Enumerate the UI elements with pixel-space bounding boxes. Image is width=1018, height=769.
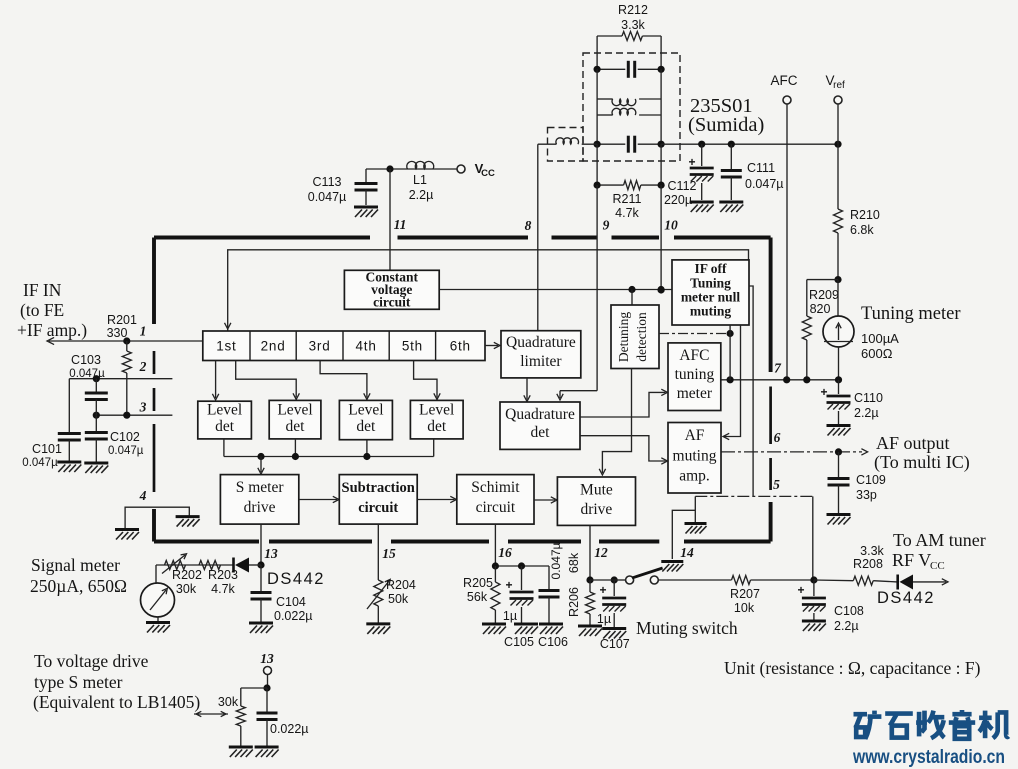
svg-text:1µ: 1µ <box>597 612 611 626</box>
svg-text:0.047µ: 0.047µ <box>22 457 58 469</box>
svg-text:13: 13 <box>260 651 274 666</box>
svg-text:2: 2 <box>139 359 147 374</box>
svg-text:R212: R212 <box>618 3 648 17</box>
svg-text:R207: R207 <box>730 587 760 601</box>
svg-text:16: 16 <box>498 545 512 560</box>
svg-text:30k: 30k <box>218 695 239 709</box>
svg-text:4th: 4th <box>356 339 377 354</box>
svg-text:+: + <box>820 385 827 399</box>
svg-text:33p: 33p <box>856 488 877 502</box>
svg-text:Level: Level <box>419 402 454 419</box>
svg-text:10: 10 <box>664 218 678 233</box>
svg-text:AF output: AF output <box>876 433 950 453</box>
svg-text:AFC: AFC <box>679 347 709 364</box>
svg-text:tuning: tuning <box>675 366 715 383</box>
svg-text:0.047µ: 0.047µ <box>108 445 144 457</box>
svg-text:Quadrature: Quadrature <box>506 334 576 351</box>
svg-text:50k: 50k <box>388 592 409 606</box>
svg-text:Signal meter: Signal meter <box>31 555 120 575</box>
svg-text:8: 8 <box>525 218 532 233</box>
svg-text:drive: drive <box>244 499 276 516</box>
svg-text:2.2µ: 2.2µ <box>834 619 859 633</box>
svg-text:circuit: circuit <box>373 295 411 310</box>
svg-text:1st: 1st <box>216 339 236 354</box>
svg-text:R201: R201 <box>107 313 137 327</box>
svg-text:0.022µ: 0.022µ <box>270 722 308 736</box>
svg-text:2.2µ: 2.2µ <box>409 188 434 202</box>
svg-text:meter null: meter null <box>681 290 741 305</box>
svg-text:C104: C104 <box>276 595 306 609</box>
svg-text:DS442: DS442 <box>267 570 325 588</box>
svg-text:To AM tuner: To AM tuner <box>893 530 986 550</box>
svg-text:drive: drive <box>580 501 612 518</box>
svg-text:220µ: 220µ <box>664 193 692 207</box>
svg-text:3.3k: 3.3k <box>860 544 884 558</box>
svg-text:6.8k: 6.8k <box>850 223 874 237</box>
svg-text:1µ: 1µ <box>503 609 517 623</box>
svg-text:5: 5 <box>773 477 780 492</box>
svg-text:30k: 30k <box>176 582 197 596</box>
svg-text:2.2µ: 2.2µ <box>854 406 879 420</box>
svg-text:RF V: RF V <box>892 550 931 570</box>
svg-text:5th: 5th <box>402 339 423 354</box>
svg-text:IF IN: IF IN <box>23 280 62 300</box>
svg-text:Unit (resistance : Ω, capacita: Unit (resistance : Ω, capacitance : F) <box>724 658 981 678</box>
svg-text:68k: 68k <box>567 552 581 573</box>
svg-text:det: det <box>356 418 376 435</box>
svg-text:1: 1 <box>140 324 147 339</box>
svg-text:C111: C111 <box>747 161 775 175</box>
svg-text:C112: C112 <box>668 179 697 193</box>
svg-text:3.3k: 3.3k <box>621 18 645 32</box>
svg-text:CC: CC <box>481 168 495 179</box>
svg-text:12: 12 <box>594 545 608 560</box>
svg-text:limiter: limiter <box>520 353 562 370</box>
svg-text:4.7k: 4.7k <box>615 206 639 220</box>
svg-text:10k: 10k <box>734 601 755 615</box>
svg-text:R206: R206 <box>567 587 581 617</box>
svg-text:type S meter: type S meter <box>34 672 123 692</box>
svg-text:Tuning meter: Tuning meter <box>861 304 961 324</box>
svg-text:Level: Level <box>277 402 312 419</box>
svg-text:R211: R211 <box>613 192 642 206</box>
svg-text:(to FE: (to FE <box>20 300 64 320</box>
svg-text:S meter: S meter <box>236 479 285 496</box>
svg-text:IF off: IF off <box>694 261 727 276</box>
svg-text:det: det <box>531 424 551 441</box>
svg-text:+: + <box>688 155 695 169</box>
svg-text:2nd: 2nd <box>261 339 286 354</box>
svg-text:circuit: circuit <box>358 500 398 516</box>
svg-text:C113: C113 <box>313 175 342 189</box>
svg-text:0.047µ: 0.047µ <box>745 177 783 191</box>
svg-text:+: + <box>599 583 606 597</box>
svg-text:0.047µ: 0.047µ <box>308 190 346 204</box>
svg-text:R202: R202 <box>172 568 202 582</box>
svg-text:R205: R205 <box>463 576 493 590</box>
svg-text:14: 14 <box>680 545 694 560</box>
svg-text:Tuning: Tuning <box>690 276 731 291</box>
svg-text:4.7k: 4.7k <box>211 582 235 596</box>
svg-text:600Ω: 600Ω <box>861 346 893 361</box>
svg-text:Detuning: Detuning <box>616 312 631 362</box>
svg-text:detection: detection <box>634 312 649 362</box>
svg-text:+IF amp.): +IF amp.) <box>17 320 87 340</box>
svg-text:AFC: AFC <box>771 73 798 88</box>
svg-text:9: 9 <box>603 218 610 233</box>
svg-text:C109: C109 <box>856 473 886 487</box>
svg-text:6: 6 <box>774 430 781 445</box>
svg-text:6th: 6th <box>450 339 471 354</box>
svg-text:DS442: DS442 <box>877 589 935 607</box>
svg-text:0.022µ: 0.022µ <box>274 609 312 623</box>
svg-text:C110: C110 <box>854 391 883 405</box>
svg-text:3rd: 3rd <box>309 339 331 354</box>
svg-text:Level: Level <box>348 402 383 419</box>
svg-text:det: det <box>215 418 235 435</box>
svg-text:+: + <box>505 578 512 592</box>
svg-text:Mute: Mute <box>580 482 613 499</box>
svg-text:C107: C107 <box>600 637 630 651</box>
svg-text:Schimit: Schimit <box>471 479 520 496</box>
svg-text:Muting switch: Muting switch <box>636 618 738 638</box>
svg-text:11: 11 <box>394 217 407 232</box>
svg-text:R209: R209 <box>809 288 839 302</box>
svg-text:820: 820 <box>810 302 831 316</box>
svg-text:amp.: amp. <box>679 468 710 485</box>
svg-text:3: 3 <box>139 400 147 415</box>
svg-text:56k: 56k <box>467 590 488 604</box>
svg-text:(To multi IC): (To multi IC) <box>874 452 970 473</box>
svg-text:Subtraction: Subtraction <box>342 480 415 496</box>
svg-text:330: 330 <box>107 326 128 340</box>
svg-text:0.047µ: 0.047µ <box>549 542 563 579</box>
svg-text:4: 4 <box>139 488 147 503</box>
svg-text:R204: R204 <box>386 578 416 592</box>
svg-text:L1: L1 <box>413 173 427 187</box>
svg-text:250µA, 650Ω: 250µA, 650Ω <box>30 576 127 596</box>
svg-text:det: det <box>427 418 447 435</box>
svg-text:(Sumida): (Sumida) <box>688 114 764 136</box>
svg-text:0.047µ: 0.047µ <box>69 368 105 380</box>
svg-text:C102: C102 <box>110 430 140 444</box>
svg-text:C105: C105 <box>504 635 534 649</box>
svg-text:det: det <box>286 418 306 435</box>
svg-text:C101: C101 <box>32 442 62 456</box>
svg-text:muting: muting <box>690 304 732 319</box>
svg-text:Quadrature: Quadrature <box>505 406 575 423</box>
svg-text:ref: ref <box>833 80 845 91</box>
svg-text:meter: meter <box>677 385 713 402</box>
svg-text:(Equivalent to LB1405): (Equivalent to LB1405) <box>33 692 200 712</box>
svg-text:Level: Level <box>207 402 242 419</box>
svg-text:15: 15 <box>382 546 396 561</box>
svg-text:To voltage drive: To voltage drive <box>34 651 149 671</box>
svg-text:R210: R210 <box>850 208 880 222</box>
svg-text:C106: C106 <box>538 635 568 649</box>
svg-text:www.crystalradio.cn: www.crystalradio.cn <box>852 747 1005 768</box>
svg-text:C108: C108 <box>834 604 864 618</box>
svg-text:R208: R208 <box>853 557 883 571</box>
svg-text:AF: AF <box>685 427 705 444</box>
svg-text:circuit: circuit <box>476 499 516 516</box>
svg-text:+: + <box>797 583 804 597</box>
svg-text:100µA: 100µA <box>861 331 899 346</box>
svg-text:CC: CC <box>930 560 945 572</box>
svg-text:muting: muting <box>673 448 717 465</box>
svg-text:C103: C103 <box>71 353 101 367</box>
svg-text:13: 13 <box>264 546 278 561</box>
